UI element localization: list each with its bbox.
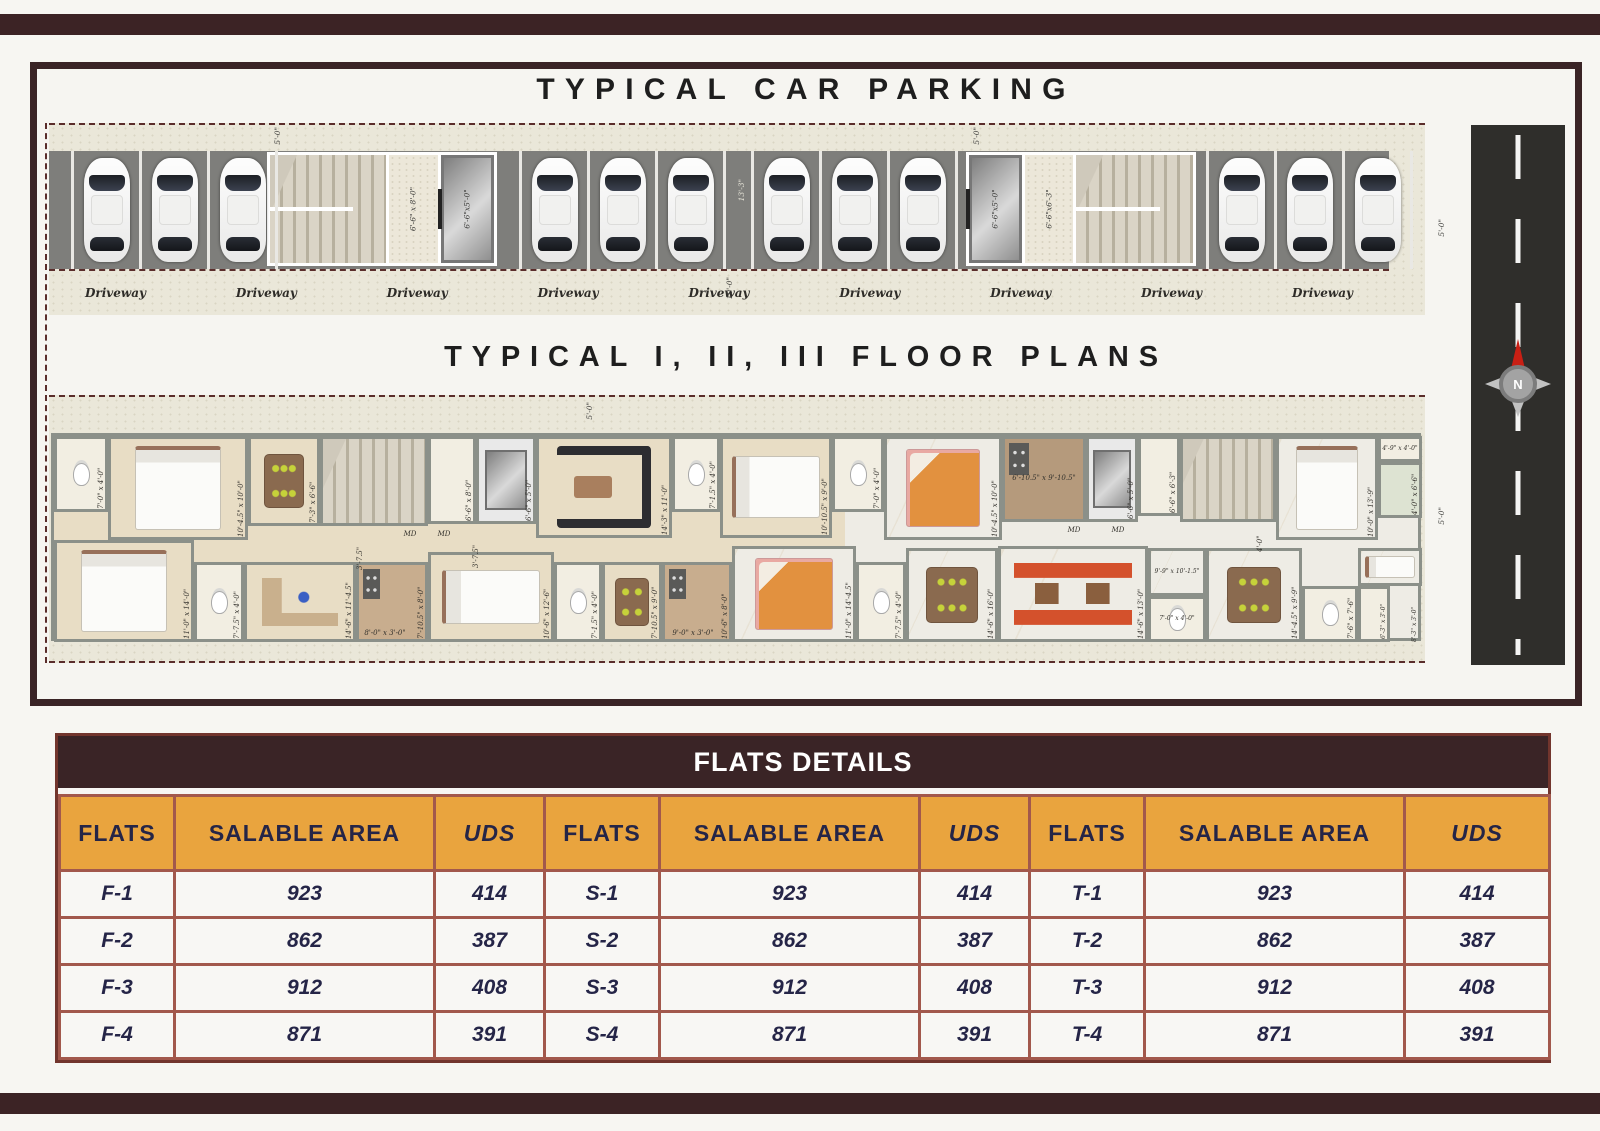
bath: 7'-1.5" x 4'-0" [672,436,720,512]
parking-stall [890,151,958,269]
room-dim-label: 4'-9" x 4'-0" [1382,446,1417,453]
table-cell: F-1 [60,871,175,918]
room-dim-label: 4'-0" x 6'-6" [1412,465,1420,515]
table-cell: T-4 [1030,1012,1145,1059]
lift: 6'-6" x 5'-0" [476,436,536,524]
car-top-view [900,158,946,262]
dim-label: 3'-7.5" [350,528,364,570]
wc-icon [873,591,890,614]
table-cell: S-4 [545,1012,660,1059]
room-dim-label: 14'-4.5" x 9'-9" [1292,551,1300,639]
road-setback-dim: 5'-0" [1437,219,1446,237]
table-cell: F-3 [60,965,175,1012]
north-compass-icon: N [1490,356,1546,412]
driveway-label: Driveway [839,286,900,300]
wc-icon [570,591,587,614]
parking-stall-group [71,151,278,269]
driveway-label: Driveway [387,286,448,300]
lift-icon [1093,450,1130,508]
table-cell: 391 [1405,1012,1550,1059]
lift-dim-label: 6'-6"x5'-0" [991,189,1000,228]
balcony: 4'-0" x 6'-6" [1378,462,1422,518]
column-header-salable-area: SALABLE AREA [1145,796,1405,871]
room-dim-label: 10'-6" x 12'-6" [544,555,552,639]
parking-stall [1209,151,1277,269]
room-dim-label: 8'-0" x 3'-0" [364,630,405,638]
bedh-icon [1365,556,1415,578]
block-top-dim: 5'-0" [273,127,282,145]
column-header-salable-area: SALABLE AREA [175,796,435,871]
dim-label: 4'-0" [1250,522,1264,552]
table-cell: 408 [920,965,1030,1012]
compass-north-label: N [1499,365,1537,403]
gap-dim-label: 13'-3" [737,179,746,201]
stair-icon [323,439,425,523]
table-cell: 391 [435,1012,545,1059]
bath: 7'-0" x 4'-0" [54,436,108,512]
table-cell: 862 [175,918,435,965]
dining: 14'-4.5" x 9'-9" [1206,548,1302,642]
dining: 7'-3" x 6'-6" [248,436,320,526]
table-cell: T-1 [1030,871,1145,918]
parking-stall [210,151,278,269]
room-dim-label: 11'-0" x 14'-0" [184,543,192,639]
table-cell: 923 [175,871,435,918]
duct: 4'-9" x 4'-0" [1378,436,1422,462]
room-dim-label: 10'-4.5" x 10'-0" [992,439,1000,537]
table6-icon [1227,567,1281,624]
living: 14'-3" x 11'-0" [536,436,672,538]
table-cell: 912 [1145,965,1405,1012]
lift-lobby: 6'-6" x 8'-0" [389,155,438,263]
top-border-bar [0,14,1600,35]
bedroom: 10'-4.5" x 10'-0" [884,436,1002,540]
car-top-view [1287,158,1333,262]
car-top-view [668,158,714,262]
staircase [1076,155,1193,263]
lift-stair-block: 6'-6"x5'-0" 6'-6"x6'-3" [966,152,1196,266]
car-parking-plan: 6'-6" x 8'-0" 6'-6"x5'-0" 6'-6"x5'-0" 6'… [49,123,1425,315]
bedroom: 10'-4.5" x 10'-0" [108,436,248,540]
lift: 6'-6" x 5'-0" [1086,436,1138,522]
bath: 7'-7.5" x 4'-0" [194,562,244,642]
room-dim-label: 10'-0" x 13'-9" [1368,439,1376,537]
living: 14'-6" x 13'-0" [998,546,1148,642]
table-cell: 408 [1405,965,1550,1012]
staircase [270,155,386,263]
car-top-view [84,158,130,262]
parking-stall [590,151,658,269]
table-cell: 387 [435,918,545,965]
lift-icon [485,450,528,510]
room-dim-label: 11'-0" x 14'-4.5" [846,549,854,639]
car-top-view [220,158,266,262]
column-header-uds: UDS [435,796,545,871]
room-dim-label: 3'-7.5" [357,528,365,570]
bedroom: 10'-0" x 13'-9" [1276,436,1378,540]
bath: 7'-0" x 4'-0" [832,436,884,512]
wc-icon [1322,603,1339,626]
lift-dim-label: 6'-6"x5'-0" [463,189,472,228]
parking-lane: 6'-6" x 8'-0" 6'-6"x5'-0" 6'-6"x5'-0" 6'… [49,151,1389,269]
bedv-icon [1296,446,1358,529]
table-cell: 387 [1405,918,1550,965]
room-dim-label: 6'-6" x 6'-3" [1170,439,1178,513]
car-top-view [764,158,810,262]
room-dim-label: 3'-7.5" [473,526,481,568]
room-dim-label: 8'-3" x 3'-0" [1412,586,1419,642]
bedv-icon [81,550,166,632]
car-top-view [600,158,646,262]
room-dim-label: 7'-0" x 4'-0" [874,439,882,509]
table-cell: S-2 [545,918,660,965]
driveway-strip: DrivewayDrivewayDrivewayDrivewayDriveway… [49,269,1389,315]
dim-label: 9'-0" x 3'-0" [658,627,728,641]
bedh-icon [732,456,820,518]
bath: 7'-0" x 4'-0" [1148,596,1206,642]
main-door-label: MD [1062,524,1086,538]
parking-stall [74,151,142,269]
parking-stall [1345,151,1413,269]
table-title: FLATS DETAILS [58,736,1548,794]
table6-icon [264,454,304,508]
floor-plans-title: TYPICAL I, II, III FLOOR PLANS [37,341,1575,374]
hall: 9'-9" x 10'-1.5" [1148,548,1206,596]
driveway-label: Driveway [236,286,297,300]
table-cell: 414 [1405,871,1550,918]
wc-icon [73,463,90,486]
north-needle-icon [1511,332,1525,369]
bedroom: 11'-0" x 14'-0" [54,540,194,642]
sofao-icon [1014,563,1132,624]
bedroom: 10'-10.5" x 9'-0" [720,436,832,538]
room-dim-label: 14'-6" x 16'-0" [988,551,996,639]
bedh-icon [442,570,541,624]
driveway-label: Driveway [990,286,1051,300]
room-dim-label: MD [1068,527,1081,535]
table-cell: 408 [435,965,545,1012]
table-row: F-2862387S-2862387T-2862387 [60,918,1550,965]
study: 14'-6" x 11'-4.5" [244,562,356,642]
desk-icon [262,578,338,627]
parking-title: TYPICAL CAR PARKING [37,73,1575,107]
road-setback-dim: 5'-0" [1437,507,1446,525]
table-cell: 862 [660,918,920,965]
lobby-dim-label: 6'-6"x6'-3" [1044,189,1053,228]
table-cell: F-2 [60,918,175,965]
lift-lobby: 6'-6"x6'-3" [1025,155,1074,263]
table-cell: 414 [920,871,1030,918]
table-cell: S-3 [545,965,660,1012]
kitchen-icon [363,569,380,599]
floor-plan-area: 5'-0" 7'-0" x 4'-0"10'-4.5" x 10'-0"7'-3… [49,395,1425,663]
lift: 6'-6"x5'-0" [969,155,1022,263]
car-top-view [832,158,878,262]
parking-stall [754,151,822,269]
table-cell: 912 [660,965,920,1012]
driveway-label: Driveway [538,286,599,300]
dim-label: 8'-3" x 3'-0" [1394,586,1418,642]
room-dim-label: MD [1112,527,1125,535]
car-top-view [1355,158,1401,262]
parking-stall [522,151,590,269]
lobby-dim-label: 6'-6" x 8'-0" [409,187,418,231]
room-dim-label: 10'-4.5" x 10'-0" [238,439,246,537]
staircase [320,436,428,526]
table-cell: 862 [1145,918,1405,965]
parking-stall-group [1206,151,1413,269]
lift-lobby: 6'-6" x 6'-3" [1138,436,1180,516]
parking-stall [658,151,726,269]
kitchen: 6'-10.5" x 9'-10.5" [1002,436,1086,522]
car-top-view [532,158,578,262]
table-cell: 923 [660,871,920,918]
room-dim-label: MD [438,531,451,539]
column-header-uds: UDS [920,796,1030,871]
lift: 6'-6"x5'-0" [441,155,494,263]
wc-icon [688,463,705,486]
room-dim-label: 9'-9" x 10'-1.5" [1155,569,1200,576]
driveway-label: Driveway [85,286,146,300]
road: N [1471,125,1565,665]
room-dim-label: 6'-6" x 5'-0" [526,439,534,521]
table-row: F-3912408S-3912408T-3912408 [60,965,1550,1012]
parking-stall-group [519,151,726,269]
bath: 7'-6" x 7'-6" [1302,586,1358,642]
driveway-label: Driveway [1292,286,1353,300]
table-cell: 912 [175,965,435,1012]
parking-stall [822,151,890,269]
column-header-flats: FLATS [1030,796,1145,871]
column-header-uds: UDS [1405,796,1550,871]
table-row: F-1923414S-1923414T-1923414 [60,871,1550,918]
bottom-border-bar [0,1093,1600,1114]
bedov-icon [906,449,980,527]
room-dim-label: 7'-3" x 6'-6" [310,439,318,523]
drawing-sheet-frame: TYPICAL CAR PARKING 6'-6" x 8'-0" 6'-6"x… [30,62,1582,706]
bedov-icon [755,558,833,630]
room-dim-label: 6'-10.5" x 9'-10.5" [1012,475,1076,483]
room-dim-label: 6'-3" x 3'-0" [1381,589,1388,639]
table-cell: 871 [660,1012,920,1059]
column-header-salable-area: SALABLE AREA [660,796,920,871]
sofad-icon [557,446,652,527]
room-dim-label: 9'-0" x 3'-0" [672,630,713,638]
table-cell: T-2 [1030,918,1145,965]
main-door-label: MD [1106,524,1130,538]
staircase [1180,436,1276,522]
driveway-label: Driveway [689,286,750,300]
site-boundary-dashed-line [45,123,47,663]
driveway-dim-label: 10'-0" [725,277,734,299]
room-dim-label: 7'-1.5" x 4'-0" [710,439,718,509]
stair-icon [1183,439,1273,519]
parking-stall-group [751,151,958,269]
main-door-label: MD [398,528,422,542]
bedroom: 11'-0" x 14'-4.5" [732,546,856,642]
table-row: F-4871391S-4871391T-4871391 [60,1012,1550,1059]
driveway-label: Driveway [1141,286,1202,300]
table-cell: T-3 [1030,965,1145,1012]
wc-icon [211,591,228,614]
column-header-flats: FLATS [60,796,175,871]
table-cell: S-1 [545,871,660,918]
bedroom: 10'-6" x 12'-6" [428,552,554,642]
room-dim-label: 7'-1.5" x 4'-0" [592,565,600,639]
table-cell: 871 [1145,1012,1405,1059]
main-door-label: MD [432,528,456,542]
table-header-row: FLATSSALABLE AREAUDSFLATSSALABLE AREAUDS… [60,796,1550,871]
lift-lobby: 6'-6" x 8'-0" [428,436,476,524]
table-cell: 923 [1145,871,1405,918]
table4-icon [615,578,648,626]
table-cell: F-4 [60,1012,175,1059]
parking-stall [1277,151,1345,269]
bath: 7'-7.5" x 4'-0" [856,562,906,642]
bedv-icon [135,446,220,529]
block-top-dim: 5'-0" [972,127,981,145]
dining: 7'-10.5" x 9'-0" [602,562,662,642]
typical-floor-plan: 7'-0" x 4'-0"10'-4.5" x 10'-0"7'-3" x 6'… [51,433,1421,641]
room-dim-label: 10'-10.5" x 9'-0" [822,439,830,535]
table-cell: 414 [435,871,545,918]
parking-stall [142,151,210,269]
flats-details-table: FLATS DETAILS FLATSSALABLE AREAUDSFLATSS… [55,733,1551,1063]
car-top-view [152,158,198,262]
room-dim-label: 7'-7.5" x 4'-0" [896,565,904,639]
setback-dim-label: 5'-0" [585,402,594,420]
room-dim-label: 7'-7.5" x 4'-0" [234,565,242,639]
table6-icon [926,567,978,624]
room-dim-label: 7'-0" x 4'-0" [98,439,106,509]
room-dim-label: 7'-6" x 7'-6" [1348,589,1356,639]
room-dim-label: 14'-3" x 11'-0" [662,439,670,535]
dining: 14'-6" x 16'-0" [906,548,998,642]
table-cell: 387 [920,918,1030,965]
dim-label: 3'-7.5" [466,526,480,568]
bedroom [1358,548,1422,586]
dim-label: 8'-0" x 3'-0" [350,627,420,641]
kitchen-icon [1009,443,1029,475]
car-top-view [1219,158,1265,262]
room-dim-label: 14'-6" x 13'-0" [1138,549,1146,639]
wc-icon [850,463,867,486]
bath: 7'-1.5" x 4'-0" [554,562,602,642]
stair-lift-block: 6'-6" x 8'-0" 6'-6"x5'-0" [267,152,497,266]
table-cell: 391 [920,1012,1030,1059]
kitchen-icon [669,569,686,599]
room-dim-label: 4'-0" [1257,522,1265,552]
column-header-flats: FLATS [545,796,660,871]
room-dim-label: 6'-6" x 8'-0" [466,439,474,521]
table-cell: 871 [175,1012,435,1059]
flats-table: FLATSSALABLE AREAUDSFLATSSALABLE AREAUDS… [58,794,1551,1060]
room-dim-label: MD [404,531,417,539]
utility: 6'-3" x 3'-0" [1358,586,1390,642]
room-dim-label: 7'-0" x 4'-0" [1159,616,1194,623]
room-dim-label: 6'-6" x 5'-0" [1128,439,1136,519]
